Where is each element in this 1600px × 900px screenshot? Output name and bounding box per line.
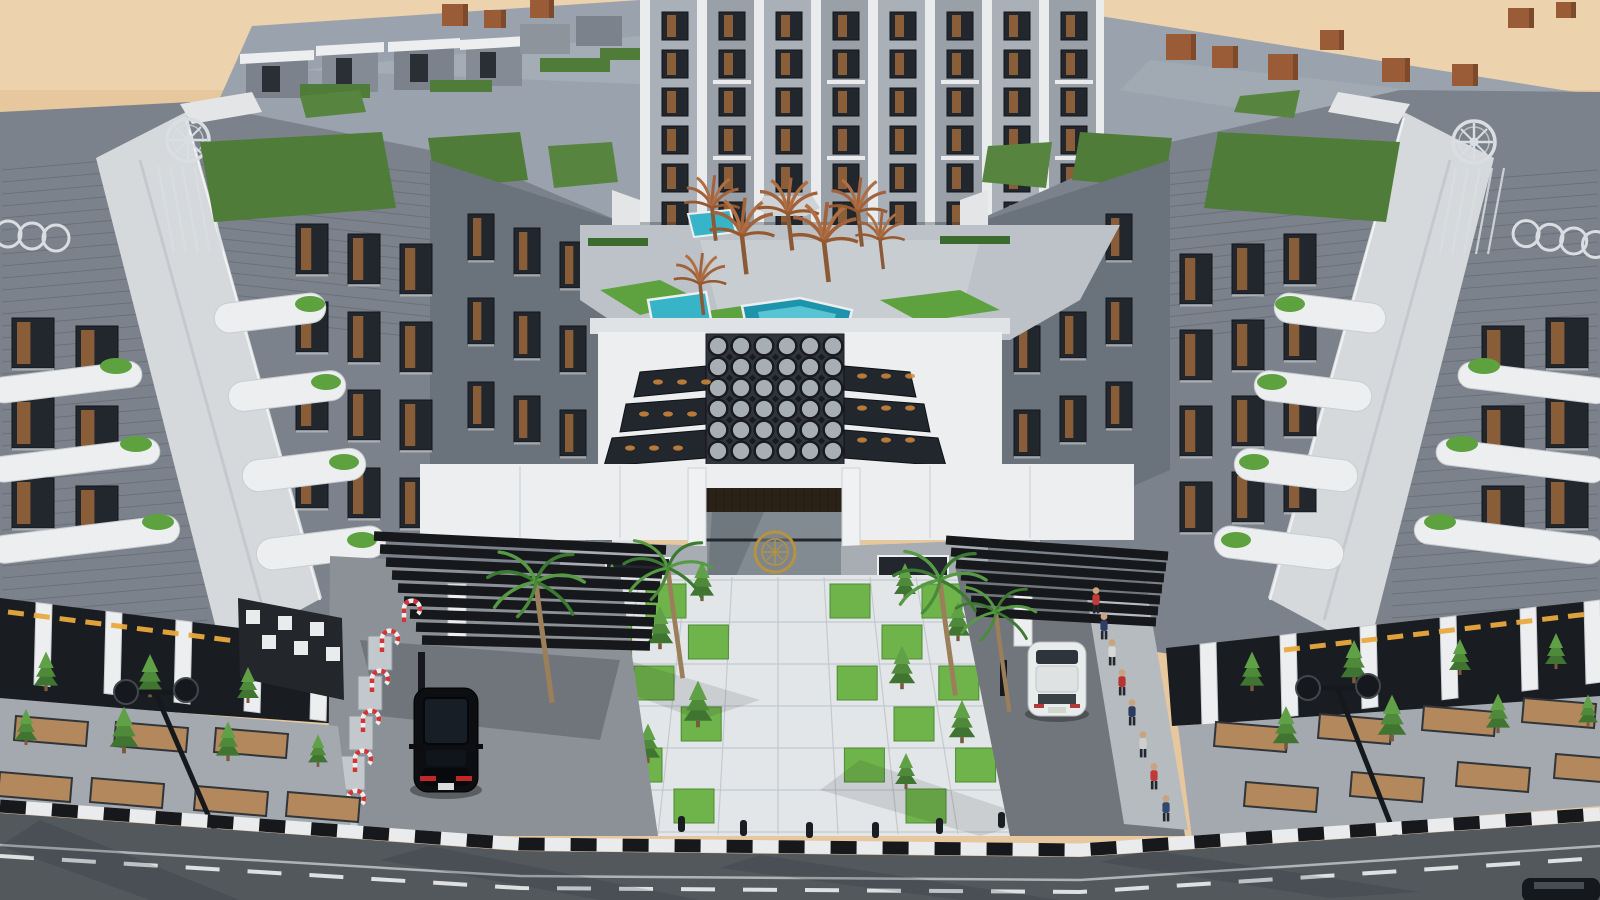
grass-square	[956, 748, 996, 782]
window-wood	[473, 386, 481, 424]
window-wood	[405, 482, 415, 524]
window-sill	[1180, 380, 1212, 383]
grass-square	[688, 625, 728, 659]
octagon-tile	[778, 421, 797, 440]
window-wood	[1237, 400, 1247, 442]
hedge	[588, 238, 648, 246]
window-sill	[514, 358, 540, 361]
window-wood	[667, 167, 676, 189]
window-wood	[1237, 324, 1247, 366]
brick-chimney-shade	[1233, 46, 1238, 68]
planter	[90, 778, 164, 808]
window-wood	[895, 91, 904, 113]
bollard	[998, 812, 1005, 828]
skylight-glint	[857, 405, 867, 410]
octagon-tile	[801, 421, 820, 440]
window-wood	[1185, 410, 1195, 452]
window	[1232, 244, 1264, 294]
window-sill	[1546, 368, 1588, 371]
octagon-tile	[709, 379, 728, 398]
brick-chimney-shade	[1571, 2, 1576, 18]
window-wood	[895, 15, 904, 37]
window-wood	[1185, 334, 1195, 376]
taillight	[1070, 704, 1080, 708]
window-wood	[895, 53, 904, 75]
skylight-glint	[701, 379, 711, 384]
octagon-pattern	[709, 337, 843, 461]
skylight-glint	[625, 445, 635, 450]
window-wood	[838, 15, 847, 37]
skylight-glint	[905, 373, 915, 378]
window	[1232, 320, 1264, 370]
octagon-tile	[824, 421, 843, 440]
window	[348, 390, 380, 440]
black-suv	[409, 688, 483, 799]
brick-chimney-shade	[1191, 34, 1196, 60]
taillight	[456, 776, 472, 781]
window-wood	[1551, 402, 1564, 444]
window-wood	[1065, 400, 1073, 438]
architectural-render	[0, 0, 1600, 900]
octagon-tile	[732, 358, 751, 377]
planter	[1422, 706, 1496, 736]
window-sill	[400, 372, 432, 375]
window-sill	[12, 368, 54, 371]
skylight-glint	[639, 411, 649, 416]
skylight-glint	[881, 437, 891, 442]
window-sill	[400, 450, 432, 453]
octagon-tile	[801, 358, 820, 377]
balcony-ledge	[827, 156, 865, 160]
window-sill	[1284, 360, 1316, 363]
checker-tile	[310, 622, 324, 636]
render-canvas	[0, 0, 1600, 900]
window-wood	[724, 129, 733, 151]
window	[1180, 406, 1212, 456]
window-wood	[1065, 316, 1073, 354]
window-sill	[348, 284, 380, 287]
canopy-post	[418, 652, 425, 692]
window-sill	[1180, 304, 1212, 307]
window-wood	[1066, 53, 1075, 75]
window-wood	[1111, 302, 1119, 340]
window-wood	[301, 228, 311, 270]
window-wood	[724, 91, 733, 113]
license-plate	[1048, 707, 1066, 713]
octagon-tile	[755, 358, 774, 377]
octagon-tile	[778, 379, 797, 398]
octagon-tile	[824, 442, 843, 461]
window-sill	[1180, 532, 1212, 535]
window-wood	[895, 167, 904, 189]
octagon-tile	[801, 442, 820, 461]
window-sill	[1232, 370, 1264, 373]
window-sill	[560, 456, 586, 459]
window-sill	[1106, 260, 1132, 263]
window	[400, 400, 432, 450]
planter	[1456, 762, 1530, 792]
octagon-tile	[778, 358, 797, 377]
checker-tile	[326, 647, 340, 661]
window	[400, 322, 432, 372]
roof-lawn	[548, 142, 618, 188]
window-sill	[468, 260, 494, 263]
partial-dark-car	[1522, 878, 1600, 900]
window-wood	[17, 322, 30, 364]
bollard	[678, 816, 685, 832]
window-wood	[724, 15, 733, 37]
window-wood	[473, 302, 481, 340]
window	[1180, 330, 1212, 380]
window-wood	[667, 53, 676, 75]
mirror	[409, 744, 417, 749]
window-wood	[952, 53, 961, 75]
window-wood	[353, 394, 363, 436]
octagon-tile	[755, 400, 774, 419]
window-wood	[1009, 15, 1018, 37]
window-wood	[838, 129, 847, 151]
octagon-tile	[801, 379, 820, 398]
window-wood	[405, 326, 415, 368]
checker-tile	[278, 616, 292, 630]
skylight-glint	[905, 405, 915, 410]
window	[1284, 234, 1316, 284]
octagon-tile	[732, 379, 751, 398]
window-sill	[1014, 456, 1040, 459]
bollard	[872, 822, 879, 838]
balcony-ledge	[941, 80, 979, 84]
octagon-tile	[824, 400, 843, 419]
balcony-ledge	[827, 80, 865, 84]
facade-pier	[754, 0, 764, 230]
window-sill	[348, 440, 380, 443]
brick-chimney-shade	[1405, 58, 1410, 82]
planter	[286, 792, 360, 822]
window-wood	[565, 414, 573, 452]
hedge	[940, 236, 1010, 244]
window-wood	[952, 15, 961, 37]
window-wood	[565, 246, 573, 284]
window-sill	[12, 448, 54, 451]
window-sill	[1546, 448, 1588, 451]
brick-chimney-shade	[501, 10, 506, 28]
octagon-tile	[732, 442, 751, 461]
octagon-tile	[801, 337, 820, 356]
window-wood	[17, 402, 30, 444]
brick-chimney-shade	[1339, 30, 1344, 50]
window	[348, 312, 380, 362]
license-plate	[438, 783, 454, 790]
bollard	[806, 822, 813, 838]
checker-tile	[294, 641, 308, 655]
storefront-pier	[1280, 633, 1298, 717]
window-wood	[405, 404, 415, 446]
window-sill	[296, 274, 328, 277]
balcony-ledge	[713, 156, 751, 160]
balcony-ledge	[713, 80, 751, 84]
window	[400, 244, 432, 294]
window-sill	[1546, 528, 1588, 531]
canopy-slat	[422, 640, 650, 646]
roof-lawn	[1204, 132, 1400, 222]
window-wood	[667, 129, 676, 151]
window	[296, 224, 328, 274]
taillight	[420, 776, 436, 781]
window-sill	[514, 274, 540, 277]
window-sill	[348, 518, 380, 521]
window-wood	[1289, 238, 1299, 280]
window-sill	[296, 508, 328, 511]
skylight-glint	[857, 373, 867, 378]
skylight-glint	[881, 373, 891, 378]
brick-chimney-shade	[549, 0, 554, 18]
window-sill	[1106, 428, 1132, 431]
window-wood	[781, 129, 790, 151]
octagon-tile	[732, 421, 751, 440]
window-sill	[1232, 294, 1264, 297]
window-wood	[667, 91, 676, 113]
window-sill	[1014, 372, 1040, 375]
skylight-glint	[905, 437, 915, 442]
roof-lawn	[200, 132, 396, 222]
planter	[1214, 722, 1288, 752]
window-wood	[1066, 129, 1075, 151]
window-sill	[400, 294, 432, 297]
octagon-tile	[778, 337, 797, 356]
planter	[1244, 782, 1318, 812]
skylight-glint	[649, 445, 659, 450]
window-wood	[781, 53, 790, 75]
octagon-tile	[755, 442, 774, 461]
window-wood	[17, 482, 30, 524]
floor-medallion	[755, 532, 795, 572]
octagon-tile	[801, 400, 820, 419]
skylight-glint	[673, 445, 683, 450]
window-wood	[1019, 330, 1027, 368]
octagon-tile	[824, 379, 843, 398]
window-wood	[1237, 248, 1247, 290]
skylight-glint	[653, 379, 663, 384]
octagon-tile	[778, 442, 797, 461]
window-wood	[1066, 91, 1075, 113]
window-wood	[353, 238, 363, 280]
octagon-tile	[755, 379, 774, 398]
window-wood	[724, 53, 733, 75]
window-sill	[1106, 344, 1132, 347]
portal-wood-header	[706, 488, 842, 512]
window-wood	[952, 167, 961, 189]
brick-chimney-shade	[463, 4, 468, 26]
grass-square	[830, 584, 870, 618]
window-wood	[405, 248, 415, 290]
grass-square	[837, 666, 877, 700]
window-wood	[838, 53, 847, 75]
octagon-tile	[824, 337, 843, 356]
window-sill	[1284, 512, 1316, 515]
roof-lawn	[982, 142, 1052, 188]
window-wood	[952, 129, 961, 151]
octagon-tile	[709, 421, 728, 440]
window-wood	[565, 330, 573, 368]
window-wood	[1185, 258, 1195, 300]
facade-pier	[640, 0, 650, 230]
window-wood	[519, 400, 527, 438]
skylight-glint	[677, 379, 687, 384]
octagon-tile	[709, 358, 728, 377]
skylight-glint	[881, 405, 891, 410]
mirror	[475, 744, 483, 749]
checker-tile	[262, 635, 276, 649]
window-sill	[1284, 284, 1316, 287]
storefront-pier	[1584, 600, 1600, 684]
window-wood	[1009, 53, 1018, 75]
window-wood	[519, 232, 527, 270]
octagon-tile	[755, 337, 774, 356]
bollard	[936, 818, 943, 834]
terrace-parapet	[590, 318, 1010, 334]
window	[348, 234, 380, 284]
window-sill	[1284, 436, 1316, 439]
octagon-tile	[732, 337, 751, 356]
brick-chimney-shade	[1529, 8, 1534, 28]
window-wood	[519, 316, 527, 354]
window	[1180, 254, 1212, 304]
skylight-glint	[857, 437, 867, 442]
window-sill	[514, 442, 540, 445]
skylight-glint	[687, 411, 697, 416]
storefront-pier	[1200, 642, 1218, 726]
window-wood	[1111, 386, 1119, 424]
window	[1232, 396, 1264, 446]
window-wood	[1019, 414, 1027, 452]
window-wood	[838, 167, 847, 189]
window-wood	[1551, 322, 1564, 364]
octagon-tile	[824, 358, 843, 377]
window-wood	[781, 91, 790, 113]
window-wood	[895, 129, 904, 151]
window-sill	[296, 352, 328, 355]
window-wood	[952, 91, 961, 113]
facade-pier	[925, 0, 935, 230]
skylight-glint	[663, 411, 673, 416]
checker-tile	[246, 610, 260, 624]
taillight	[1034, 704, 1044, 708]
bollard	[740, 820, 747, 836]
window-wood	[1009, 91, 1018, 113]
window-sill	[468, 428, 494, 431]
octagon-tile	[709, 442, 728, 461]
octagon-tile	[709, 400, 728, 419]
window-sill	[1180, 456, 1212, 459]
window-sill	[296, 430, 328, 433]
window-wood	[1185, 486, 1195, 528]
planter	[1350, 772, 1424, 802]
grass-square	[939, 666, 979, 700]
brick-chimney-shade	[1473, 64, 1478, 86]
window-sill	[1060, 442, 1086, 445]
octagon-tile	[778, 400, 797, 419]
window-wood	[781, 15, 790, 37]
window-wood	[667, 15, 676, 37]
window-wood	[1551, 482, 1564, 524]
window-wood	[1237, 476, 1247, 518]
balcony-ledge	[1055, 80, 1093, 84]
balcony-ledge	[941, 156, 979, 160]
window-sill	[1232, 522, 1264, 525]
window-sill	[1060, 358, 1086, 361]
grass-square	[894, 707, 934, 741]
window-wood	[473, 218, 481, 256]
octagon-tile	[709, 337, 728, 356]
window-sill	[468, 344, 494, 347]
planter	[1554, 754, 1600, 784]
brick-chimney-shade	[1293, 54, 1298, 80]
white-crossover	[1025, 642, 1089, 722]
window-wood	[353, 316, 363, 358]
planter	[0, 772, 72, 802]
window-wood	[1066, 15, 1075, 37]
window-sill	[560, 372, 586, 375]
octagon-tile	[755, 421, 774, 440]
window-sill	[348, 362, 380, 365]
octagon-tile	[732, 400, 751, 419]
window	[1180, 482, 1212, 532]
window-wood	[838, 91, 847, 113]
